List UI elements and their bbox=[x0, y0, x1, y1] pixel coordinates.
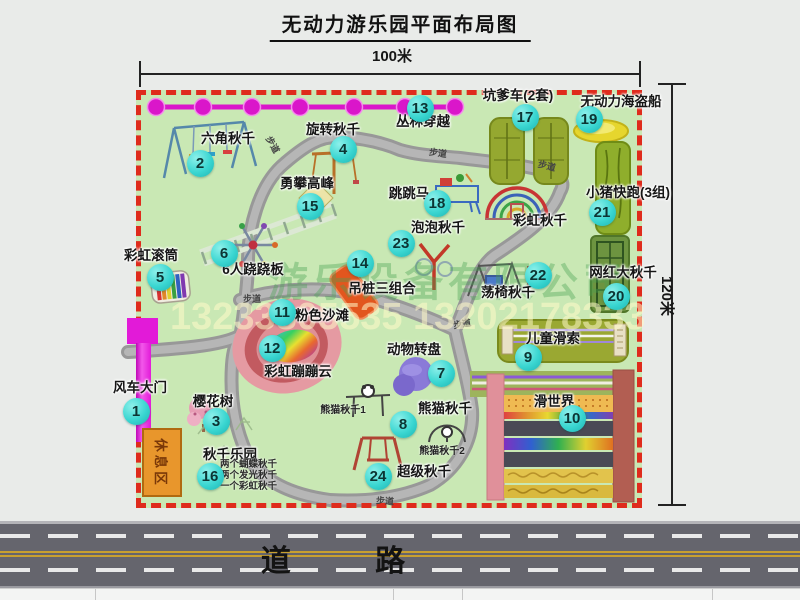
feature-badge-24: 24 bbox=[365, 463, 392, 490]
feature-badge-18: 18 bbox=[424, 190, 451, 217]
feature-label-six-seesaw: 6人跷跷板 bbox=[222, 263, 284, 278]
feature-badge-11: 11 bbox=[269, 299, 296, 326]
page-title: 无动力游乐园平面布局图 bbox=[270, 8, 531, 42]
bottom-divider bbox=[393, 589, 394, 600]
bottom-strip bbox=[0, 588, 800, 600]
height-tick-bottom bbox=[658, 504, 686, 506]
rest-area: 休息区 bbox=[142, 428, 182, 497]
height-dimension-label: 120米 bbox=[657, 276, 678, 316]
page: 无动力游乐园平面布局图 100米 120米 bbox=[0, 0, 800, 600]
feature-badge-16: 16 bbox=[197, 463, 224, 490]
feature-label-bubble-swing: 泡泡秋千 bbox=[411, 221, 465, 236]
width-dimension-line bbox=[140, 73, 640, 75]
rest-area-label: 休息区 bbox=[152, 438, 172, 488]
width-dimension-label: 100米 bbox=[372, 45, 412, 66]
panda-swing-icon-2 bbox=[429, 426, 465, 443]
feature-badge-22: 22 bbox=[525, 262, 552, 289]
feature-sublabel-swing-park-1: 两个蝴蝶秋千 bbox=[220, 460, 277, 470]
slide-world-icon bbox=[470, 370, 634, 502]
windmill-gate-icon bbox=[127, 318, 158, 344]
feature-badge-14: 14 bbox=[347, 250, 374, 277]
feature-label-rainbow-cloud: 彩虹蹦蹦云 bbox=[264, 365, 332, 380]
walkway-label: 步道 bbox=[428, 145, 448, 160]
width-tick-left bbox=[139, 61, 141, 87]
feature-badge-7: 7 bbox=[428, 360, 455, 387]
feature-label-rainbow-swing: 彩虹秋千 bbox=[513, 214, 567, 229]
feature-badge-6: 6 bbox=[211, 240, 238, 267]
feature-label-climbing-peak: 勇攀高峰 bbox=[280, 177, 334, 192]
feature-badge-17: 17 bbox=[512, 104, 539, 131]
feature-badge-3: 3 bbox=[203, 408, 230, 435]
feature-badge-12: 12 bbox=[259, 335, 286, 362]
bottom-divider bbox=[95, 589, 96, 600]
feature-label-windmill-gate: 风车大门 bbox=[113, 381, 167, 396]
feature-badge-4: 4 bbox=[330, 136, 357, 163]
feature-sublabel-panda-1: 熊猫秋千1 bbox=[320, 401, 366, 416]
feature-sublabel-swing-park-3: 一个彩虹秋千 bbox=[220, 482, 277, 492]
feature-badge-2: 2 bbox=[187, 150, 214, 177]
road-edge-top bbox=[0, 521, 800, 524]
feature-label-hanging-posts: 吊桩三组合 bbox=[348, 282, 416, 297]
feature-badge-23: 23 bbox=[388, 230, 415, 257]
feature-badge-13: 13 bbox=[407, 95, 434, 122]
feature-label-rocking-chair-swing: 荡椅秋千 bbox=[481, 286, 535, 301]
feature-label-kengdie-car: 坑爹车(2套) bbox=[483, 89, 554, 104]
feature-badge-10: 10 bbox=[559, 405, 586, 432]
width-tick-right bbox=[639, 61, 641, 87]
animal-carousel-icon bbox=[393, 357, 433, 396]
feature-badge-20: 20 bbox=[603, 283, 630, 310]
feature-label-rainbow-roller: 彩虹滚筒 bbox=[124, 249, 178, 264]
feature-label-pink-beach: 粉色沙滩 bbox=[295, 309, 349, 324]
feature-label-jumping-horse: 跳跳马 bbox=[389, 187, 430, 202]
feature-badge-21: 21 bbox=[589, 199, 616, 226]
feature-label-super-swing: 超级秋千 bbox=[397, 465, 451, 480]
feature-sublabel-swing-park-2: 两个发光秋千 bbox=[220, 471, 277, 481]
feature-label-panda-swing: 熊猫秋千 bbox=[418, 402, 472, 417]
feature-badge-8: 8 bbox=[390, 411, 417, 438]
bottom-divider bbox=[462, 589, 463, 600]
feature-badge-1: 1 bbox=[123, 398, 150, 425]
feature-label-rotating-swing: 旋转秋千 bbox=[306, 123, 360, 138]
road-label: 道 路 bbox=[261, 536, 443, 580]
walkway-label: 步道 bbox=[376, 493, 395, 507]
feature-label-big-swing: 网红大秋千 bbox=[589, 266, 657, 281]
road: 道 路 bbox=[0, 521, 800, 588]
bottom-divider bbox=[712, 589, 713, 600]
feature-sublabel-panda-2: 熊猫秋千2 bbox=[419, 442, 465, 457]
feature-label-animal-carousel: 动物转盘 bbox=[387, 343, 441, 358]
feature-badge-5: 5 bbox=[147, 264, 174, 291]
feature-badge-9: 9 bbox=[515, 344, 542, 371]
feature-bad ge-19: 19 bbox=[576, 106, 603, 133]
feature-label-hexagon-swing: 六角秋千 bbox=[201, 132, 255, 147]
feature-badge-15: 15 bbox=[297, 193, 324, 220]
height-tick-top bbox=[658, 83, 686, 85]
